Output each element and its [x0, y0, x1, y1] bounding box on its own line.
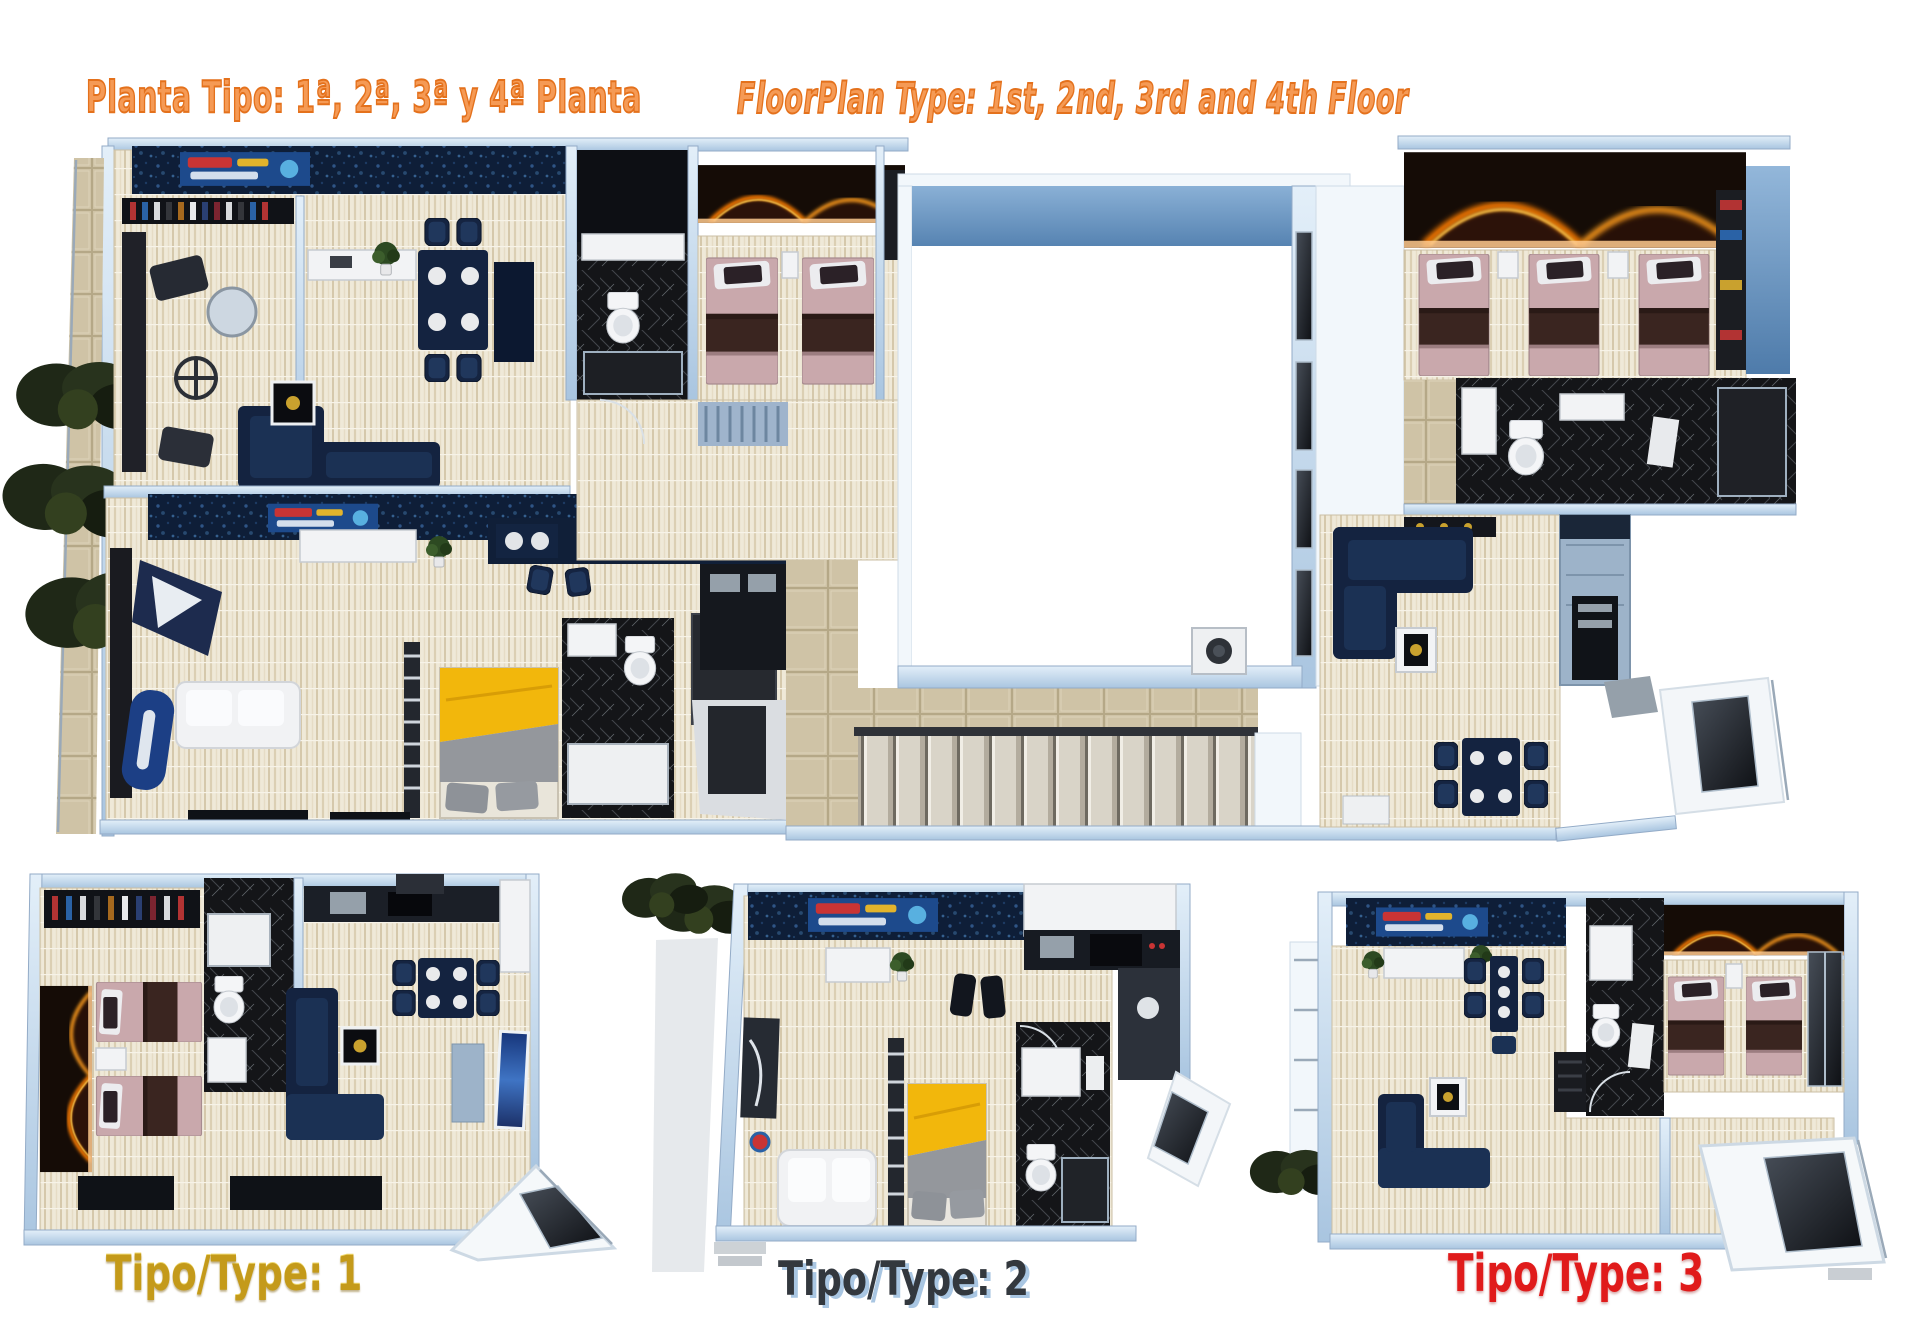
nightstand — [1608, 252, 1628, 278]
sideboard — [300, 530, 416, 562]
led-fire-headboard — [40, 986, 92, 1172]
bed — [1668, 977, 1724, 1075]
type3-balcony — [1700, 1138, 1886, 1280]
closet-side-rack — [122, 232, 146, 472]
toilet-icon — [624, 636, 655, 685]
courtyard-top-wall — [898, 174, 1350, 188]
vanity — [1590, 926, 1632, 980]
kitchen-right — [1560, 515, 1658, 718]
vanity — [582, 234, 684, 260]
bathroom-b — [562, 618, 674, 818]
bathroom-right — [1404, 378, 1796, 515]
dining-table — [418, 250, 488, 350]
tv-poster — [808, 898, 938, 932]
type3-coffee-table — [1430, 1078, 1466, 1116]
tv-poster — [180, 152, 310, 186]
type3-floorplan — [1250, 892, 1886, 1280]
bed — [706, 258, 778, 384]
entry-step — [714, 1242, 766, 1254]
appliance — [1343, 796, 1389, 824]
floorplans-graphic — [0, 0, 1920, 1326]
type1-left-wall — [24, 874, 42, 1244]
bedroom-center — [698, 146, 905, 400]
main-floorplan — [0, 136, 1796, 841]
apartment-a — [114, 146, 570, 488]
type2-bottom-wall — [716, 1226, 1136, 1241]
counter — [1118, 968, 1180, 1080]
toilet-icon — [214, 976, 244, 1023]
courtyard-left-wall — [898, 186, 912, 688]
tv-poster — [268, 504, 378, 533]
sideboard — [308, 250, 416, 280]
nightstand — [782, 252, 798, 278]
led-fire-headboard — [1404, 152, 1746, 248]
sink — [208, 1038, 246, 1082]
window — [1296, 570, 1312, 656]
main-bottom-wall — [786, 826, 1556, 840]
type1-coffee-table — [342, 1028, 378, 1064]
sink — [1462, 388, 1496, 454]
dishwasher — [1604, 676, 1658, 718]
threshold — [78, 1176, 174, 1210]
bathroom-dark-wall — [577, 150, 690, 242]
toilet-icon — [607, 292, 640, 343]
range — [1090, 934, 1142, 966]
white-sofa — [176, 682, 300, 748]
bed — [802, 258, 874, 384]
bed — [97, 1076, 202, 1136]
nightstand — [1498, 252, 1518, 278]
type2-bathroom — [1016, 1022, 1110, 1226]
tv-poster — [1376, 907, 1488, 936]
yellow-bed — [440, 668, 558, 818]
bedroom-right — [1404, 152, 1790, 380]
shower-glass — [1062, 1158, 1108, 1222]
window — [1692, 696, 1758, 792]
slat-divider — [404, 642, 420, 818]
type3-bedroom — [1664, 905, 1844, 1092]
type3-right-wall — [1844, 892, 1858, 1144]
counter — [1560, 515, 1630, 539]
media-console — [1384, 948, 1464, 978]
vanity — [1560, 394, 1624, 420]
courtyard-void — [912, 246, 1292, 666]
bed — [1639, 254, 1709, 376]
entry-step — [718, 1256, 762, 1266]
shower-glass — [584, 352, 682, 394]
console — [452, 1044, 484, 1122]
bed — [1746, 977, 1802, 1075]
stair-handrail — [854, 727, 1258, 736]
apartment-b-bottom-wall — [100, 820, 792, 834]
hall-wall — [1660, 1118, 1670, 1238]
type2-white-sofa — [778, 1150, 876, 1230]
window — [1296, 362, 1312, 450]
ceiling-fan-icon — [176, 358, 216, 398]
title-english: FloorPlan Type: 1st, 2nd, 3rd and 4th Fl… — [737, 74, 1409, 124]
towel — [1086, 1056, 1104, 1090]
sink — [1137, 997, 1159, 1019]
living-right — [1320, 515, 1560, 827]
hall-tiles — [786, 560, 858, 826]
type1-floorplan — [24, 874, 614, 1260]
shower-glass — [1718, 388, 1786, 496]
range-hood — [396, 874, 444, 894]
shower-tray — [568, 744, 668, 804]
type2-bed — [908, 1084, 986, 1226]
nightstand — [96, 1048, 126, 1070]
courtyard — [898, 174, 1350, 688]
media-console — [826, 948, 890, 982]
type3-left-wall — [1318, 892, 1332, 1242]
coffee-table-a — [272, 382, 314, 424]
toilet-icon — [1026, 1144, 1056, 1191]
floorplan-page: Planta Tipo: 1ª, 2ª, 3ª y 4ª Planta Floo… — [0, 0, 1920, 1326]
threshold — [230, 1176, 382, 1210]
entry-door — [708, 706, 766, 794]
sidewalk — [652, 938, 718, 1272]
type2-label: Tipo/Type: 2 — [778, 1252, 1029, 1307]
washer — [1192, 628, 1246, 674]
step — [1828, 1268, 1872, 1280]
slat-divider — [888, 1038, 904, 1226]
type3-label: Tipo/Type: 3 — [1448, 1244, 1704, 1304]
bathroom-center — [566, 146, 698, 400]
toilet-icon — [1592, 1004, 1620, 1047]
towel — [1628, 1023, 1654, 1069]
bed — [1529, 254, 1599, 376]
mirror — [208, 288, 256, 336]
type2-floorplan — [619, 869, 1230, 1272]
stair-landing — [1255, 733, 1301, 827]
window — [1296, 232, 1312, 340]
sink — [568, 624, 616, 656]
led-fire-headboard — [1664, 905, 1844, 955]
title-spanish: Planta Tipo: 1ª, 2ª, 3ª y 4ª Planta — [86, 72, 642, 123]
emblem — [751, 1133, 769, 1151]
coffee-table-right — [1396, 628, 1436, 672]
type1-label: Tipo/Type: 1 — [106, 1246, 362, 1302]
bedroom-right-wall — [1746, 166, 1790, 374]
toilet-icon — [1509, 420, 1544, 475]
type1-bottom-wall — [24, 1230, 486, 1245]
balcony-right — [1660, 678, 1788, 814]
bed — [1419, 254, 1489, 376]
kitchen-island — [494, 262, 534, 362]
stool — [980, 975, 1006, 1019]
sideboard-decor — [330, 256, 352, 268]
type3-bathroom — [1586, 898, 1664, 1116]
cabinet — [500, 880, 530, 972]
main-top-wall-right — [1398, 136, 1790, 149]
right-unit — [1316, 152, 1796, 841]
staircase — [858, 735, 1255, 827]
wall-art-blue — [496, 1031, 529, 1128]
bed — [97, 982, 202, 1042]
nightstand — [1726, 964, 1742, 988]
shower-tray — [208, 914, 270, 966]
led-fire-headboard — [698, 165, 905, 223]
type2-balcony — [1148, 1072, 1230, 1186]
window — [1296, 470, 1312, 548]
vanity — [1022, 1048, 1080, 1096]
